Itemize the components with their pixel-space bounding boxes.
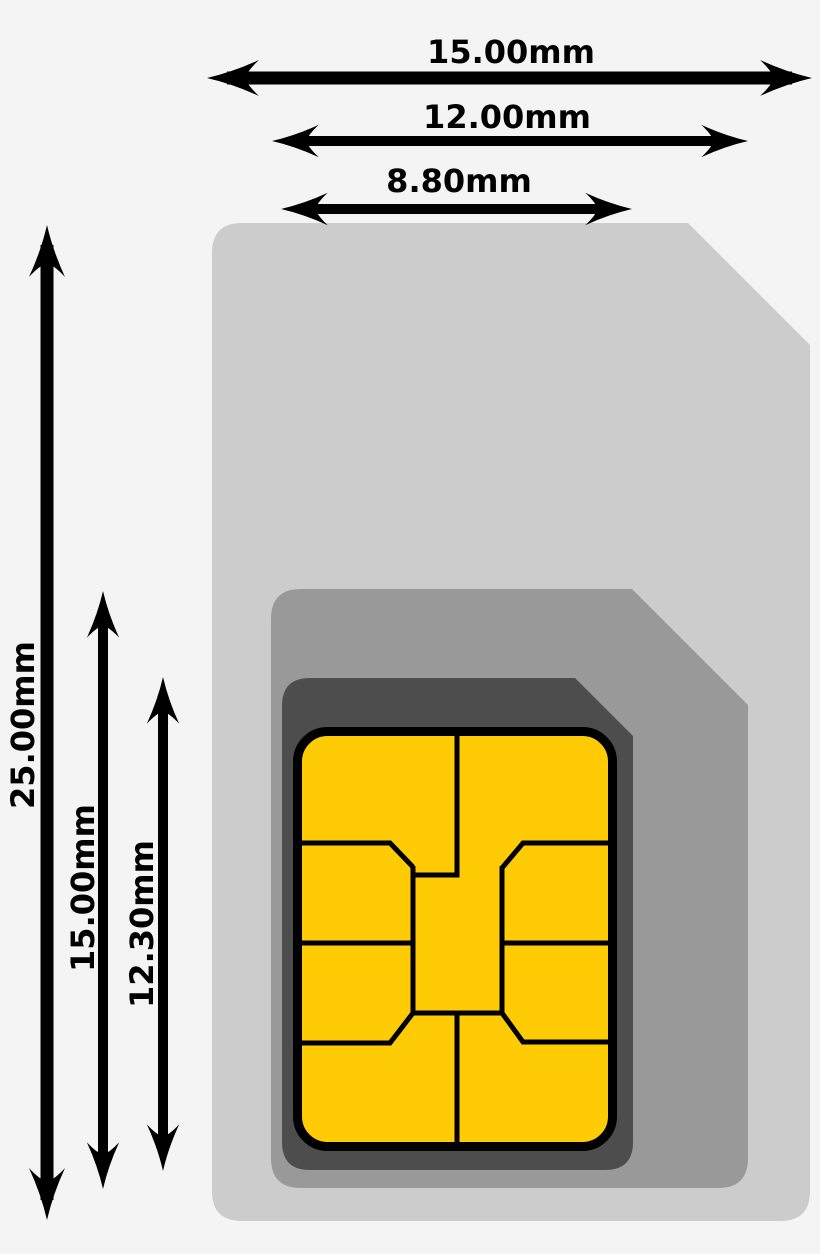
mini-height-label: 25.00mm [4,641,42,809]
arrow-shaft [41,245,54,1200]
arrow-shaft [290,136,730,146]
sim-card-size-diagram: 15.00mm 12.00mm 8.80mm 25.00mm 15.00mm 1… [0,0,820,1254]
micro-width-label: 12.00mm [423,98,591,136]
nano-height-label: 12.30mm [123,840,161,1008]
mini-width-label: 15.00mm [427,33,595,71]
nano-width-label: 8.80mm [386,162,532,200]
arrow-shaft [299,204,614,214]
arrow-shaft [227,72,792,85]
sim-chip [298,731,613,1147]
micro-height-label: 15.00mm [64,804,102,972]
